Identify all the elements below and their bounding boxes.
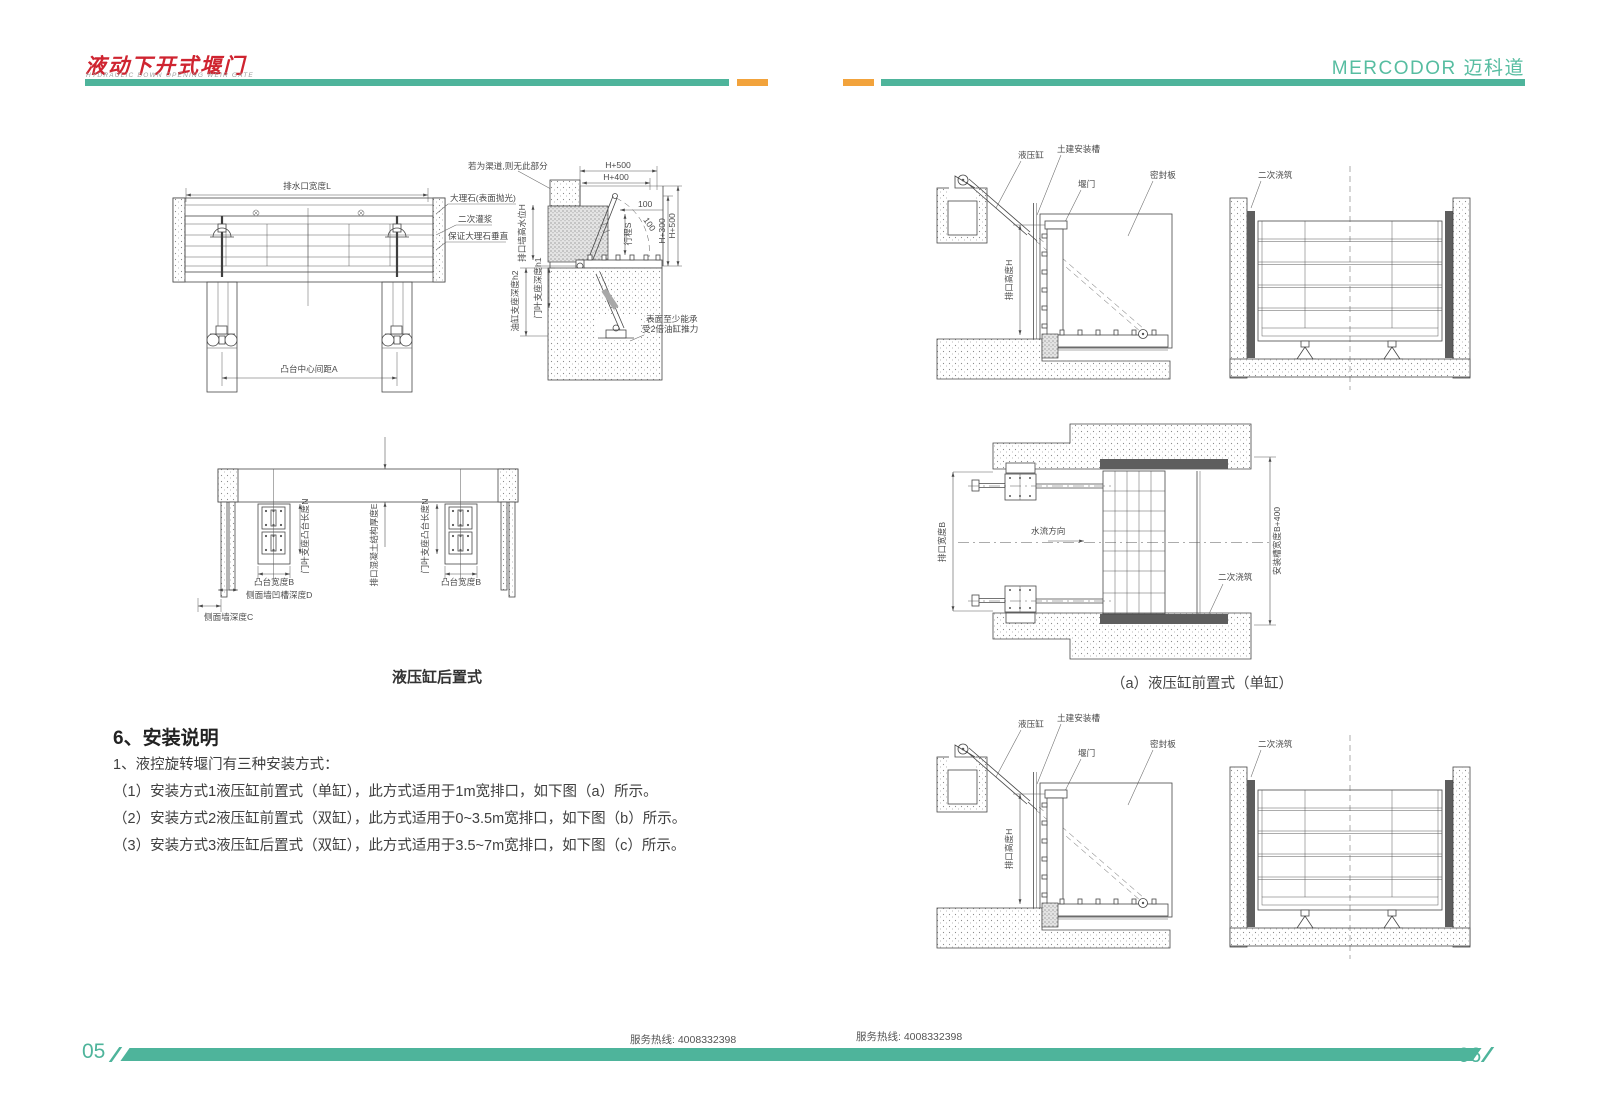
install-item-1: （1）安装方式1液压缸前置式（单缸），此方式适用于1m宽排口，如下图（a）所示。 xyxy=(113,780,658,801)
front-view-geometry xyxy=(173,188,445,392)
section-intro: 1、液控旋转堰门有三种安装方式： xyxy=(113,753,339,774)
install-view-c-drawing: 液压缸 土建安装槽 堰门 密封板 二次浇筑 排口高度H xyxy=(900,697,1470,965)
hotline-right: 服务热线: 4008332398 xyxy=(856,1029,962,1044)
label-weir-gate-c: 堰门 xyxy=(1078,747,1095,758)
dim-100-diagonal: 100 xyxy=(641,215,658,233)
footer-slash-right xyxy=(1481,1047,1495,1062)
front-elevation-drawing: 排水口宽度L 凸台中心间距A xyxy=(150,138,470,430)
footer-rule xyxy=(120,1048,1481,1061)
plan-view-drawing: 门叶支座凸台长度N 门叶支座凸台长度N 排口混凝土结构厚度E 凸台宽度B 凸台宽… xyxy=(190,432,540,662)
label-boss-spacing: 凸台中心间距A xyxy=(280,363,338,374)
label-boss-width-left: 凸台宽度B xyxy=(254,576,294,587)
vlabel-boss-length-right: 门叶支座凸台长度N xyxy=(419,499,430,574)
dim-h400: H+400 xyxy=(603,172,629,182)
logo-subtitle: HYDRAULIC DOWN OPENING WEIR GATE xyxy=(86,72,254,79)
label-seal-plate: 密封板 xyxy=(1150,169,1176,180)
note-force-line2: 受2倍油缸推力 xyxy=(642,323,698,334)
label-hydraulic-cylinder: 液压缸 xyxy=(1018,149,1044,160)
vlabel-concrete-thickness: 排口混凝土结构厚度E xyxy=(368,503,379,586)
label-wall-depth: 侧面墙深度C xyxy=(204,611,253,622)
label-marble: 大理石(表面抛光) xyxy=(450,192,516,203)
plan-view-b-drawing: 排口宽度B 水流方向 二次浇筑 安装槽宽度B+400 xyxy=(918,412,1296,662)
label-secondary-pour-b: 二次浇筑 xyxy=(1218,571,1253,582)
install-view-a-drawing: 液压缸 土建安装槽 堰门 密封板 二次浇筑 排口高度H xyxy=(900,128,1470,396)
vlabel-wall-height: 排口墙高水位H xyxy=(516,204,527,262)
vlabel-cylinder-depth: 油缸支座深度h2 xyxy=(509,270,520,331)
label-marble-vertical: 保证大理石垂直 xyxy=(448,230,509,241)
caption-rear-mount: 液压缸后置式 xyxy=(352,666,522,687)
vlabel-drain-height-c: 排口高度H xyxy=(1003,829,1014,870)
side-section-drawing: 若为渠道,则无此部分 大理石(表面抛光) 二次灌浆 保证大理石垂直 H+500 … xyxy=(430,138,695,396)
header-rule-accent-right xyxy=(843,79,874,86)
header-rule-right xyxy=(881,79,1525,86)
vlabel-groove-width: 安装槽宽度B+400 xyxy=(1271,507,1282,575)
install-item-3: （3）安装方式3液压缸后置式（双缸），此方式适用于3.5~7m宽排口，如下图（c… xyxy=(113,834,685,855)
note-channel: 若为渠道,则无此部分 xyxy=(468,160,548,171)
note-force-line1: 表面至少能承 xyxy=(646,313,698,324)
label-install-groove: 土建安装槽 xyxy=(1057,143,1100,154)
install-item-2: （2）安装方式2液压缸前置式（双缸），此方式适用于0~3.5m宽排口，如下图（b… xyxy=(113,807,686,828)
label-hydraulic-cylinder-c: 液压缸 xyxy=(1018,718,1044,729)
dim-h500-right: H+500 xyxy=(667,213,677,239)
label-secondary-pour: 二次浇筑 xyxy=(1258,169,1293,180)
label-seal-plate-c: 密封板 xyxy=(1150,738,1176,749)
hotline-left: 服务热线: 4008332398 xyxy=(630,1032,736,1047)
vlabel-drain-height: 排口高度H xyxy=(1003,260,1014,301)
install-a-geometry xyxy=(937,155,1470,390)
brand-name: MERCODOR 迈科道 xyxy=(1332,53,1525,80)
dim-stroke-s: 行程S xyxy=(622,222,633,245)
install-c-geometry xyxy=(937,724,1470,959)
header-rule-left xyxy=(85,79,729,86)
caption-front-mount-single: （a）液压缸前置式（单缸） xyxy=(1082,672,1322,693)
vlabel-boss-length-left: 门叶支座凸台长度N xyxy=(299,499,310,574)
label-groove-depth: 侧面墙凹槽深度D xyxy=(246,589,312,600)
label-weir-gate: 堰门 xyxy=(1078,178,1095,189)
page-number-left: 05 xyxy=(82,1040,105,1064)
dim-100: 100 xyxy=(638,199,653,209)
vlabel-gate-depth: 门叶支座深度h1 xyxy=(532,257,543,318)
vlabel-drain-width-b: 排口宽度B xyxy=(936,522,947,562)
label-flow-direction: 水流方向 xyxy=(1031,525,1065,536)
section-heading: 6、安装说明 xyxy=(113,723,219,750)
label-drain-width: 排水口宽度L xyxy=(283,180,331,191)
label-boss-width-right: 凸台宽度B xyxy=(441,576,481,587)
header-rule-accent-left xyxy=(737,79,768,86)
catalog-spread: 液动下开式堰门 HYDRAULIC DOWN OPENING WEIR GATE… xyxy=(0,0,1610,1100)
label-grout: 二次灌浆 xyxy=(458,213,493,224)
label-secondary-pour-c: 二次浇筑 xyxy=(1258,738,1293,749)
dim-h500-top: H+500 xyxy=(605,160,631,170)
plan-b-geometry xyxy=(953,424,1276,659)
label-install-groove-c: 土建安装槽 xyxy=(1057,712,1100,723)
dim-h300: H+300 xyxy=(657,218,667,244)
